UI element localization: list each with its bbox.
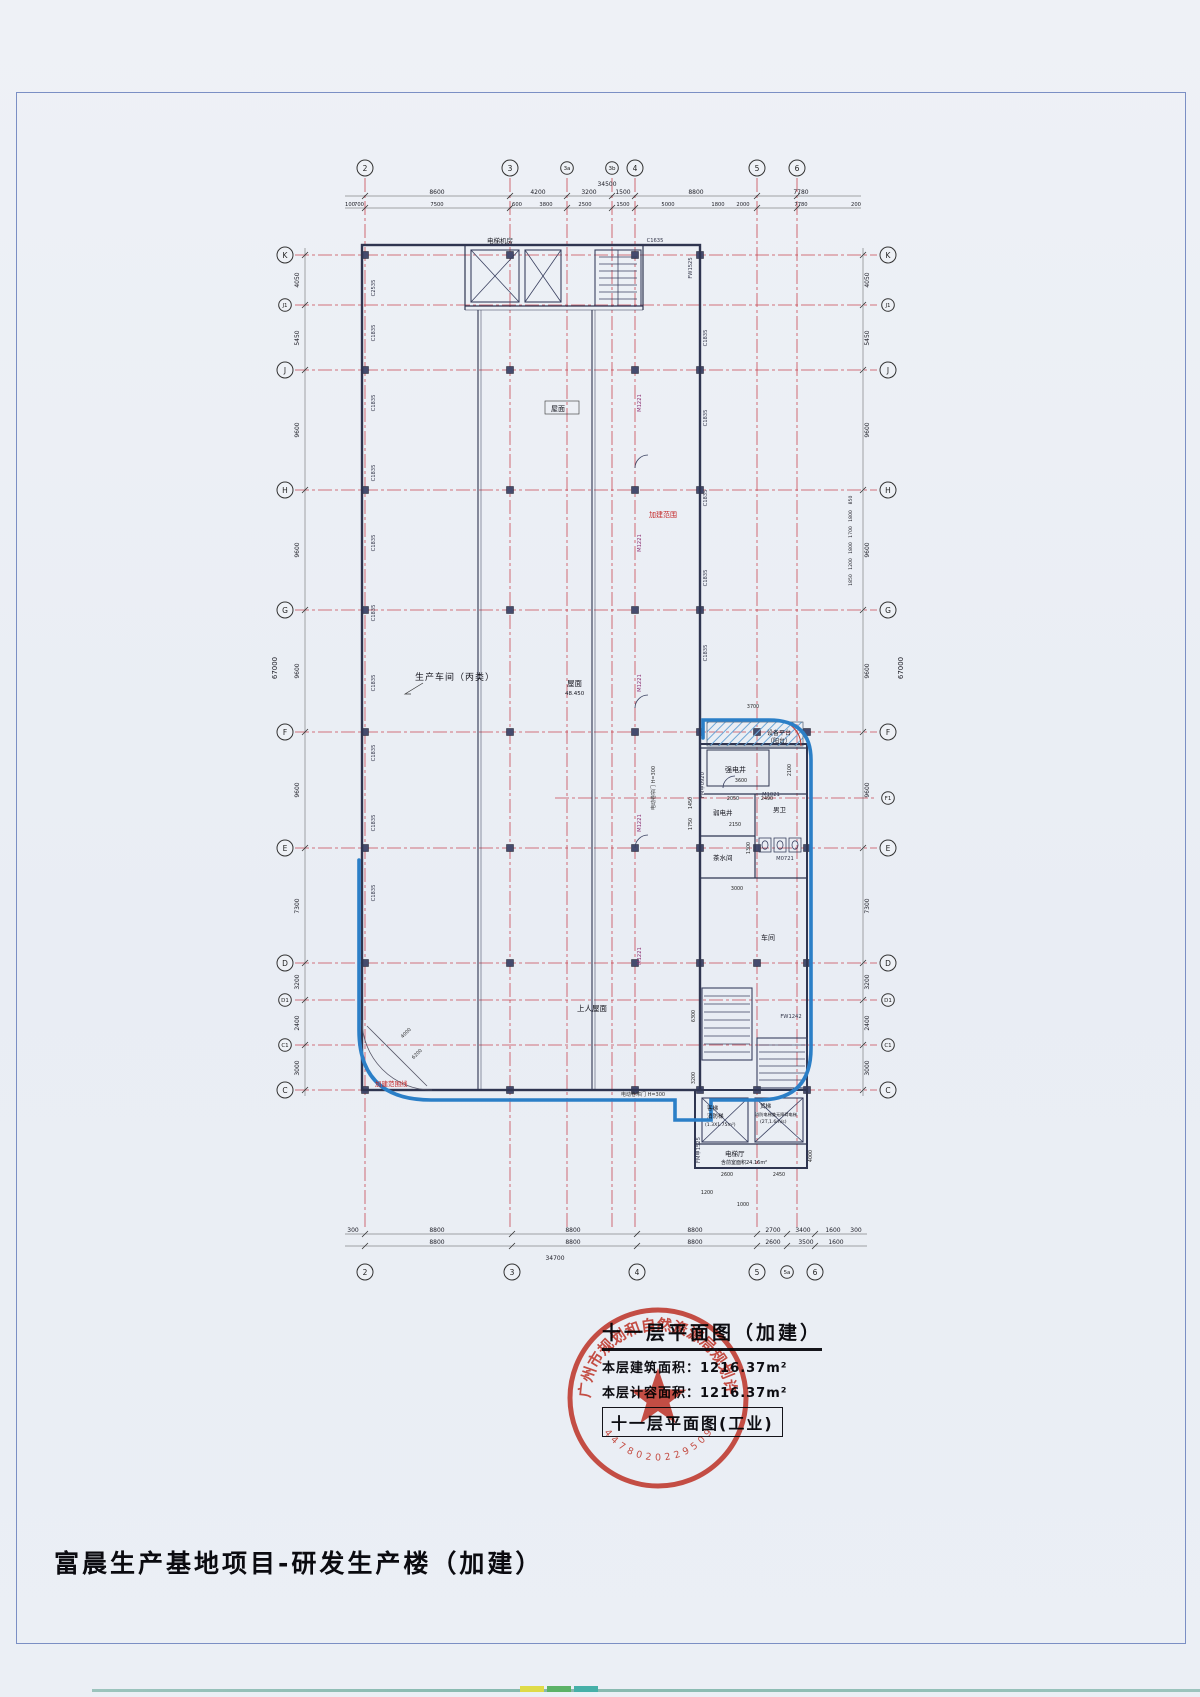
dimension-text: 8800: [429, 1239, 444, 1246]
grid-bubble-label: J: [886, 366, 889, 375]
dimension-text: 67000: [271, 657, 279, 679]
grid-bubble-label: D1: [281, 998, 289, 1004]
annotation-roller-door-side: 电动卷帘门 H=300: [650, 766, 657, 810]
label-pass-elevator-size: (1.3X1.75m²): [705, 1122, 736, 1128]
stamp-serial-number: 4478020229509: [602, 1424, 717, 1463]
inner-dimension-text: 2050: [727, 796, 739, 802]
tag-m1221: M1221: [637, 534, 643, 552]
grid-bubble-label: E: [886, 844, 891, 853]
tag-m1221: M1221: [637, 674, 643, 692]
inner-dimension-text: 2450: [773, 1172, 785, 1178]
stamp-star-icon: [630, 1368, 687, 1423]
grid-bubble-label: 6: [813, 1268, 818, 1277]
scan-color-chip-green: [547, 1686, 571, 1692]
column-square: [507, 607, 514, 614]
dimension-text: 9600: [294, 422, 301, 437]
annotation-addition-scope: 加建范围: [649, 510, 677, 519]
column-square: [632, 607, 639, 614]
dimension-text: 4050: [294, 272, 301, 287]
grid-bubble-label: 4: [633, 164, 638, 173]
label-elevator-lobby: 电梯厅: [725, 1149, 745, 1158]
dimension-text: 3500: [798, 1239, 813, 1246]
label-weak-elec: 弱电井: [713, 808, 733, 817]
dimension-text: 7780: [793, 189, 808, 196]
dimension-text: 7300: [864, 898, 871, 913]
tag-m1221: M1221: [637, 394, 643, 412]
grid-bubble-label: F1: [885, 796, 892, 802]
column-square: [632, 487, 639, 494]
column-square: [507, 367, 514, 374]
dimension-text: 34500: [597, 181, 616, 188]
column-square: [632, 252, 639, 259]
grid-bubble-label: J1: [281, 303, 287, 309]
dimension-text: 3200: [864, 974, 871, 989]
grid-bubble-label: 2: [363, 164, 368, 173]
project-title: 富晨生产基地项目-研发生产楼（加建）: [54, 1544, 543, 1580]
dimension-text: 2400: [294, 1015, 301, 1030]
inner-dimension-text: 3000: [731, 886, 743, 892]
dimension-text: 850: [848, 496, 854, 505]
grid-bubble-label: J1: [884, 303, 890, 309]
inner-dimensions-layer: 3700360021001450175020502490215013003000…: [400, 704, 814, 1208]
label-lobby-area: 含前室面积24.16m²: [721, 1159, 767, 1166]
label-roof-level: 48.450: [565, 691, 585, 697]
tag-c1835: C1835: [371, 675, 377, 692]
tag-c1835: C1835: [703, 645, 709, 662]
dimension-text: 1600: [825, 1227, 840, 1234]
tag-c1835: C1835: [703, 570, 709, 587]
inner-dimension-text: 2600: [721, 1172, 733, 1178]
official-red-stamp: 广州市规划和自然资源局规划许可专用章 4478020229509: [560, 1300, 756, 1496]
dimension-text: 7500: [430, 202, 443, 208]
grid-bubble-label: 2: [363, 1268, 368, 1277]
dimension-text: 2400: [864, 1015, 871, 1030]
grid-bubble-label: 4: [635, 1268, 640, 1277]
dimension-text: 3200: [581, 189, 596, 196]
dimension-text: 9600: [294, 782, 301, 797]
scanner-edge-strip: [92, 1689, 1200, 1692]
dimension-text: 1500: [615, 189, 630, 196]
inner-dimension-text: 1000: [737, 1202, 749, 1208]
inner-dimension-text: 2150: [729, 822, 741, 828]
floor-plan-area: 8600420032001500880077801007007500600380…: [255, 148, 915, 1303]
grid-bubble-label: G: [282, 606, 288, 615]
tag-fw1242: FW1242: [780, 1014, 801, 1020]
label-freight-note: 消防电梯兼无障碍电梯: [755, 1111, 797, 1118]
tag-c1835: C1835: [371, 395, 377, 412]
dimension-text: 600: [512, 202, 522, 208]
inner-dimension-text: 4000: [808, 1150, 814, 1162]
dimension-text: 2000: [736, 202, 749, 208]
dimension-text: 1800: [848, 510, 854, 522]
dimension-text: 200: [851, 202, 861, 208]
inner-dimension-text: 1750: [688, 818, 694, 830]
inner-dimension-text: 3600: [735, 778, 747, 784]
inner-dimension-text: 3200: [691, 1072, 697, 1084]
tag-c1835: C1835: [703, 330, 709, 347]
dimension-text: 3000: [294, 1060, 301, 1075]
label-upper-roof: 上人屋面: [577, 1004, 607, 1013]
dimension-text: 3000: [864, 1060, 871, 1075]
label-freight-size: (2T,1.6m/s): [760, 1119, 787, 1125]
tag-c1835: C1835: [371, 325, 377, 342]
dimension-text: 3800: [539, 202, 552, 208]
dimension-text: 8600: [429, 189, 444, 196]
door-window-tags-layer: C2535C1635FW1525C1835C1835C1835C1835C183…: [371, 238, 802, 1163]
label-roof: 屋面: [567, 679, 582, 688]
annotation-scope-line: 加建范围线: [375, 1079, 408, 1088]
label-male-wc: 男卫: [773, 806, 787, 814]
inner-dimension-text: 2490: [761, 796, 773, 802]
floor-plan-svg: 8600420032001500880077801007007500600380…: [255, 148, 915, 1303]
tag-m0721: M0721: [776, 856, 794, 862]
red-annotations: 加建范围 加建范围线 电动卷帘门 H=300 电动卷帘门 H=300: [375, 510, 677, 1098]
label-leader-line: [405, 683, 423, 694]
tag-c1835: C1835: [371, 815, 377, 832]
grid-lines-layer: [295, 178, 877, 1228]
grid-bubble-label: 3b: [609, 166, 616, 172]
label-production-hall: 生产车间（丙类）: [415, 671, 495, 683]
dimension-text: 7780: [794, 202, 807, 208]
dimension-text: 1200: [848, 558, 854, 570]
dimension-text: 5450: [864, 330, 871, 345]
dimension-text: 300: [347, 1227, 359, 1234]
dimension-text: 67000: [897, 657, 905, 679]
grid-bubble-label: 3a: [564, 166, 571, 172]
inner-dimension-text: 4000: [400, 1027, 413, 1040]
grid-bubble-label: J: [283, 366, 286, 375]
dimension-text: 1600: [828, 1239, 843, 1246]
label-equip-platform: 设备平台: [767, 729, 791, 737]
grid-bubble-label: D: [885, 959, 891, 968]
dimension-text: 8800: [687, 1239, 702, 1246]
label-fire-elevator: 消防梯: [707, 1112, 724, 1120]
dimension-text: 300: [850, 1227, 862, 1234]
grid-bubble-label: H: [282, 486, 288, 495]
dimension-text: 2700: [765, 1227, 780, 1234]
dimension-text: 8800: [688, 189, 703, 196]
tag-m1221: M1221: [637, 947, 643, 965]
dimension-text: 700: [354, 202, 364, 208]
label-tea-room: 茶水间: [713, 853, 733, 862]
grid-bubble-label: 5: [755, 164, 760, 173]
dimension-text: 8800: [565, 1239, 580, 1246]
column-square: [507, 845, 514, 852]
label-workshop: 车间: [761, 933, 775, 942]
tag-c1835: C1835: [703, 490, 709, 507]
dimension-text: 5450: [294, 330, 301, 345]
dimension-text: 5000: [661, 202, 674, 208]
dimension-text: 2600: [765, 1239, 780, 1246]
grid-bubble-label: 3: [508, 164, 513, 173]
dimension-text: 1850: [848, 574, 854, 586]
column-square: [754, 960, 761, 967]
dimension-text: 9600: [864, 542, 871, 557]
tag-fw1525: FW1525: [688, 257, 694, 278]
inner-dimension-text: 1300: [746, 842, 752, 854]
label-machine-room: 电梯机房: [487, 236, 513, 245]
dimension-text: 34700: [545, 1255, 564, 1262]
tag-c1835: C1835: [371, 745, 377, 762]
dimension-text: 1500: [616, 202, 629, 208]
grid-bubble-label: 5a: [784, 1270, 791, 1276]
tag-c1835: C1835: [371, 885, 377, 902]
room-labels: 电梯机房 屋面 生产车间（丙类） 屋面 48.450 上人屋面 强电井 设备平台…: [415, 236, 797, 1166]
dimension-text: 9600: [294, 542, 301, 557]
inner-dimension-text: 6200: [411, 1048, 424, 1061]
dimension-text: 3400: [795, 1227, 810, 1234]
grid-bubble-label: F: [283, 728, 287, 737]
scan-color-chip-teal: [574, 1686, 598, 1692]
label-freight-elevator: 货梯: [760, 1102, 772, 1110]
scan-color-chip-yellow: [520, 1686, 544, 1692]
dimension-text: 1800: [848, 542, 854, 554]
column-square: [507, 729, 514, 736]
dimension-text: 9600: [864, 663, 871, 678]
dimension-text: 9600: [864, 782, 871, 797]
dimension-text: 2500: [578, 202, 591, 208]
tag-c1835: C1835: [371, 465, 377, 482]
grid-bubble-label: D: [282, 959, 288, 968]
tag-c1835: C1835: [703, 410, 709, 427]
dimension-text: 4200: [530, 189, 545, 196]
grid-bubble-label: 5: [755, 1268, 760, 1277]
tag-c1835: C1835: [371, 605, 377, 622]
column-square: [507, 960, 514, 967]
grid-bubble-label: H: [885, 486, 891, 495]
tag-m1221: M1221: [637, 814, 643, 832]
label-strong-elec: 强电井: [725, 765, 746, 774]
grid-bubble-label: C1: [884, 1043, 891, 1049]
label-balcony: （阳台）: [767, 737, 791, 745]
tag-c1835: C1835: [371, 535, 377, 552]
walls: [362, 245, 807, 1168]
label-pass-elevator: 客梯: [707, 1104, 719, 1112]
grid-bubble-label: C: [282, 1086, 287, 1095]
dimension-text: 9600: [294, 663, 301, 678]
tag-c2535: C2535: [371, 280, 377, 297]
label-roof-boxed: 屋面: [551, 405, 565, 413]
tag-fm1525: FM甲1525: [695, 1137, 702, 1163]
grid-bubble-label: 3: [510, 1268, 515, 1277]
grid-bubble-label: D1: [884, 998, 892, 1004]
dimension-text: 3200: [294, 974, 301, 989]
grid-bubble-label: E: [283, 844, 288, 853]
tag-c1635: C1635: [647, 238, 664, 244]
dimension-text: 4050: [864, 272, 871, 287]
column-square: [507, 487, 514, 494]
dimension-text: 9600: [864, 422, 871, 437]
dimension-text: 7300: [294, 898, 301, 913]
column-square: [632, 729, 639, 736]
column-square: [632, 367, 639, 374]
inner-dimension-text: 2100: [787, 764, 793, 776]
inner-dimension-text: 6300: [691, 1010, 697, 1022]
dimension-text: 8800: [565, 1227, 580, 1234]
grid-bubble-label: C: [885, 1086, 890, 1095]
grid-bubble-label: C1: [281, 1043, 288, 1049]
annotation-roller-door-bottom: 电动卷帘门 H=300: [621, 1091, 665, 1098]
dimension-text: 1800: [711, 202, 724, 208]
grid-bubble-label: 6: [795, 164, 800, 173]
grid-bubble-label: G: [885, 606, 891, 615]
grid-bubble-label: F: [886, 728, 890, 737]
dimension-text: 8800: [687, 1227, 702, 1234]
inner-dimension-text: 1450: [688, 797, 694, 809]
inner-dimension-text: 1200: [701, 1190, 713, 1196]
dimension-text: 8800: [429, 1227, 444, 1234]
dimension-text: 1700: [848, 526, 854, 538]
inner-dimension-text: 3700: [747, 704, 759, 710]
